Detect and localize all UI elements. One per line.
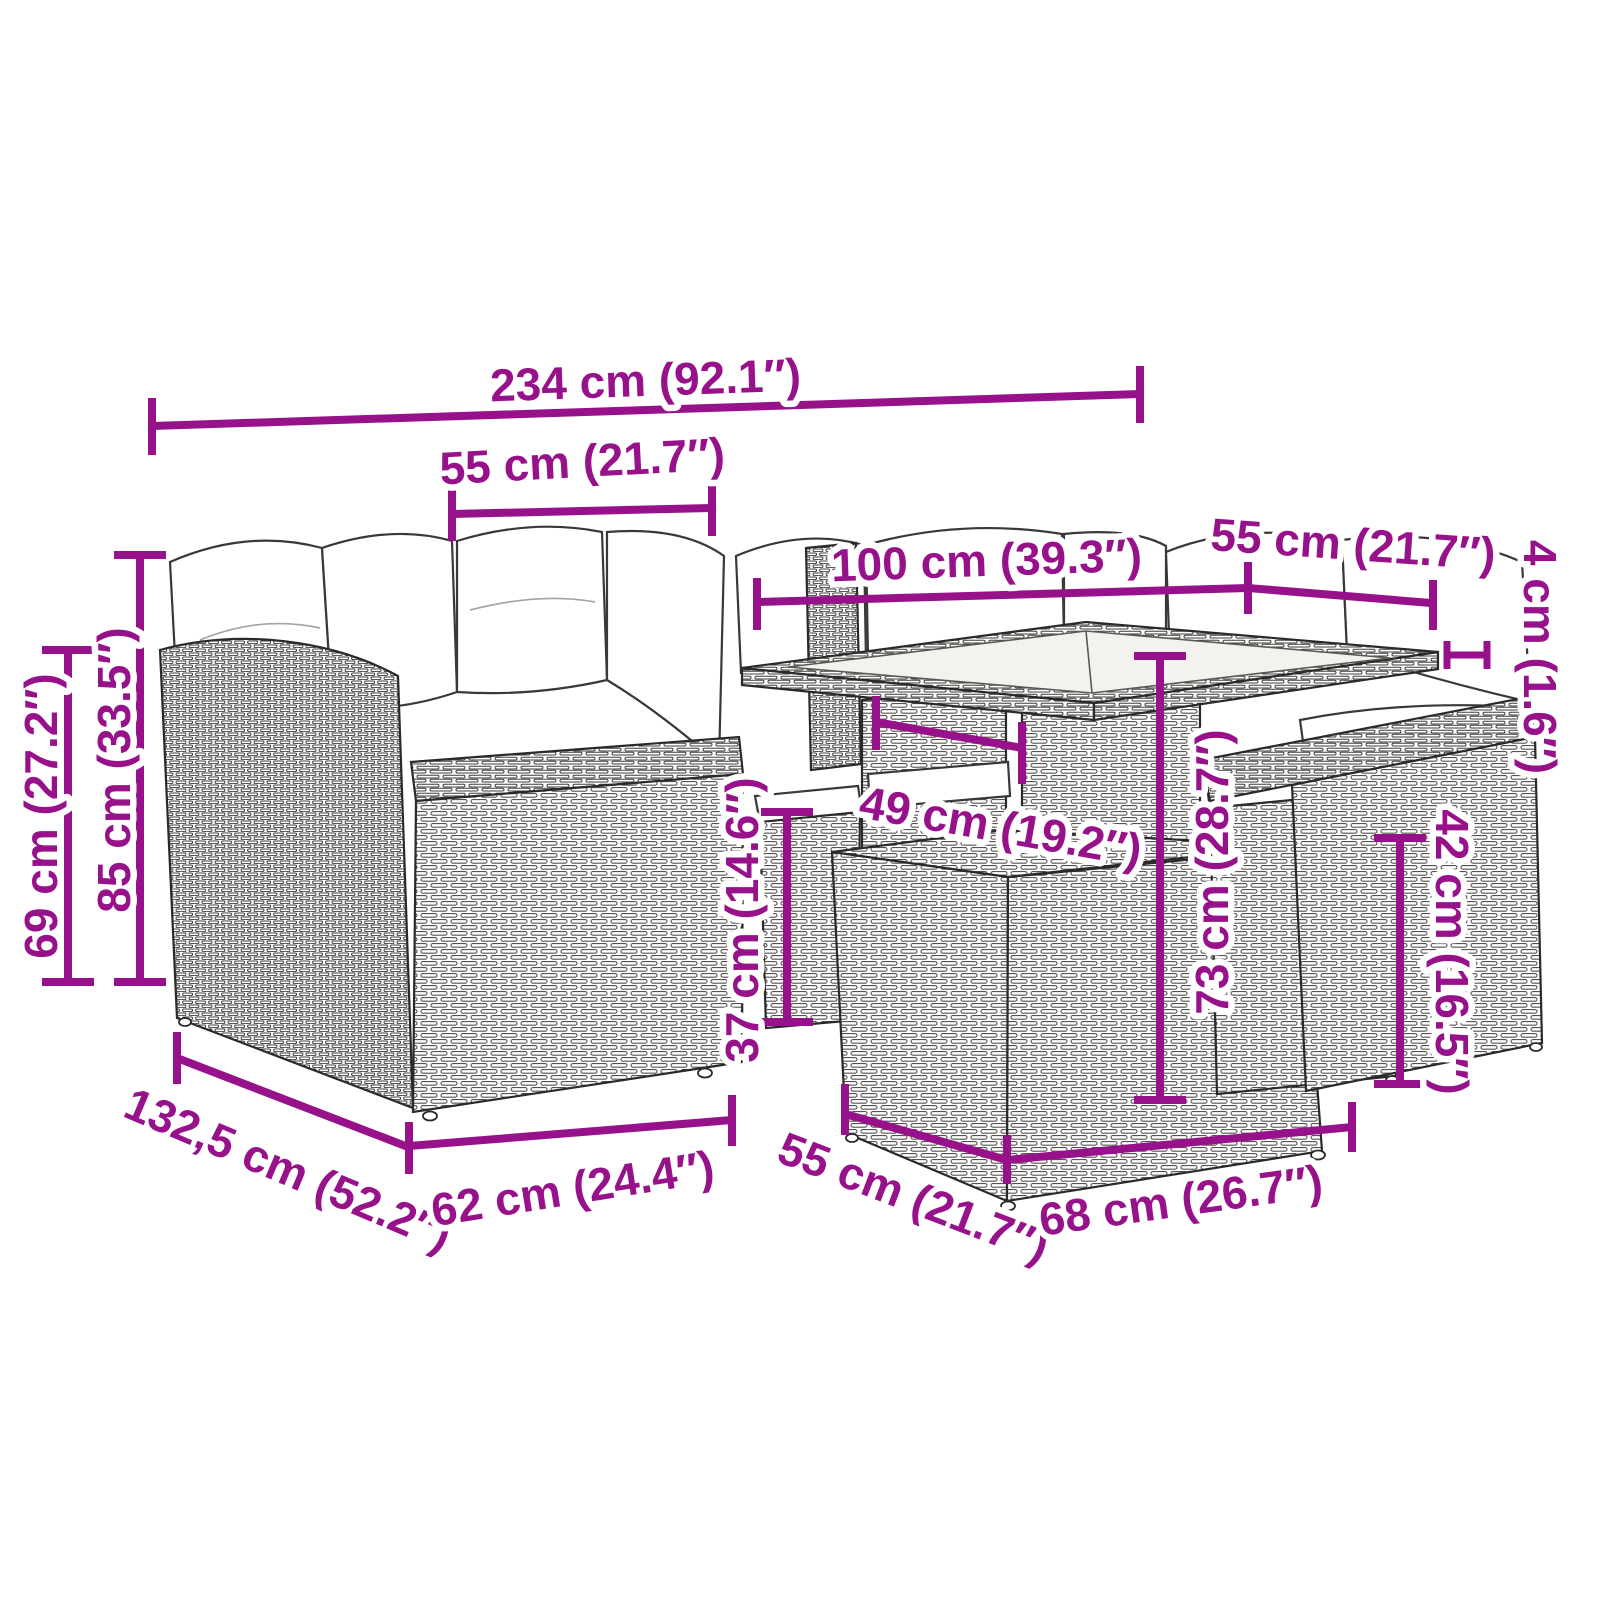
furniture-illustration bbox=[160, 527, 1542, 1211]
dim-backrest-width: 55 cm (21.7″) bbox=[438, 428, 726, 541]
dimension-line bbox=[409, 1120, 732, 1146]
dim-total-height: 85 cm (33.5″) bbox=[88, 555, 166, 982]
left-sofa-side-panel bbox=[160, 639, 413, 1108]
sofa-foot bbox=[698, 1069, 712, 1078]
dimension-label-tabletop-thickness: 4 cm (1.6″) bbox=[1514, 540, 1566, 774]
dim-armrest-height: 69 cm (27.2″) bbox=[15, 650, 94, 982]
back-cushion bbox=[607, 531, 724, 764]
dimension-line bbox=[452, 508, 712, 514]
dimension-label-seat-height: 37 cm (14.6″) bbox=[716, 777, 768, 1062]
sofa-foot bbox=[1530, 1043, 1542, 1051]
dimension-label-table-height: 73 cm (28.7″) bbox=[1186, 729, 1238, 1014]
right-sofa-front-panel bbox=[1292, 737, 1542, 1091]
back-cushion bbox=[457, 527, 607, 693]
dimension-diagram-page: 234 cm (92.1″) 55 cm (21.7″) 100 cm (39.… bbox=[0, 0, 1600, 1600]
dimension-label-overall-width: 234 cm (92.1″) bbox=[489, 349, 802, 412]
ottoman-foot bbox=[846, 1134, 858, 1142]
left-sofa-front-panel bbox=[413, 774, 743, 1112]
sofa-foot bbox=[423, 1112, 437, 1121]
dimension-diagram: 234 cm (92.1″) 55 cm (21.7″) 100 cm (39.… bbox=[0, 0, 1600, 1600]
dimension-label-total-height: 85 cm (33.5″) bbox=[88, 627, 140, 912]
dim-seat-module-depth: 62 cm (24.4″) bbox=[409, 1095, 732, 1236]
dimension-label-table-length: 100 cm (39.3″) bbox=[830, 529, 1143, 592]
dimension-label-ottoman-height: 42 cm (16.5″) bbox=[1426, 809, 1478, 1094]
sofa-foot bbox=[179, 1018, 191, 1026]
dimension-label-seat-module-depth: 62 cm (24.4″) bbox=[427, 1140, 717, 1236]
dimension-label-backrest-width: 55 cm (21.7″) bbox=[438, 428, 726, 495]
dimension-label-armrest-height: 69 cm (27.2″) bbox=[15, 673, 67, 958]
